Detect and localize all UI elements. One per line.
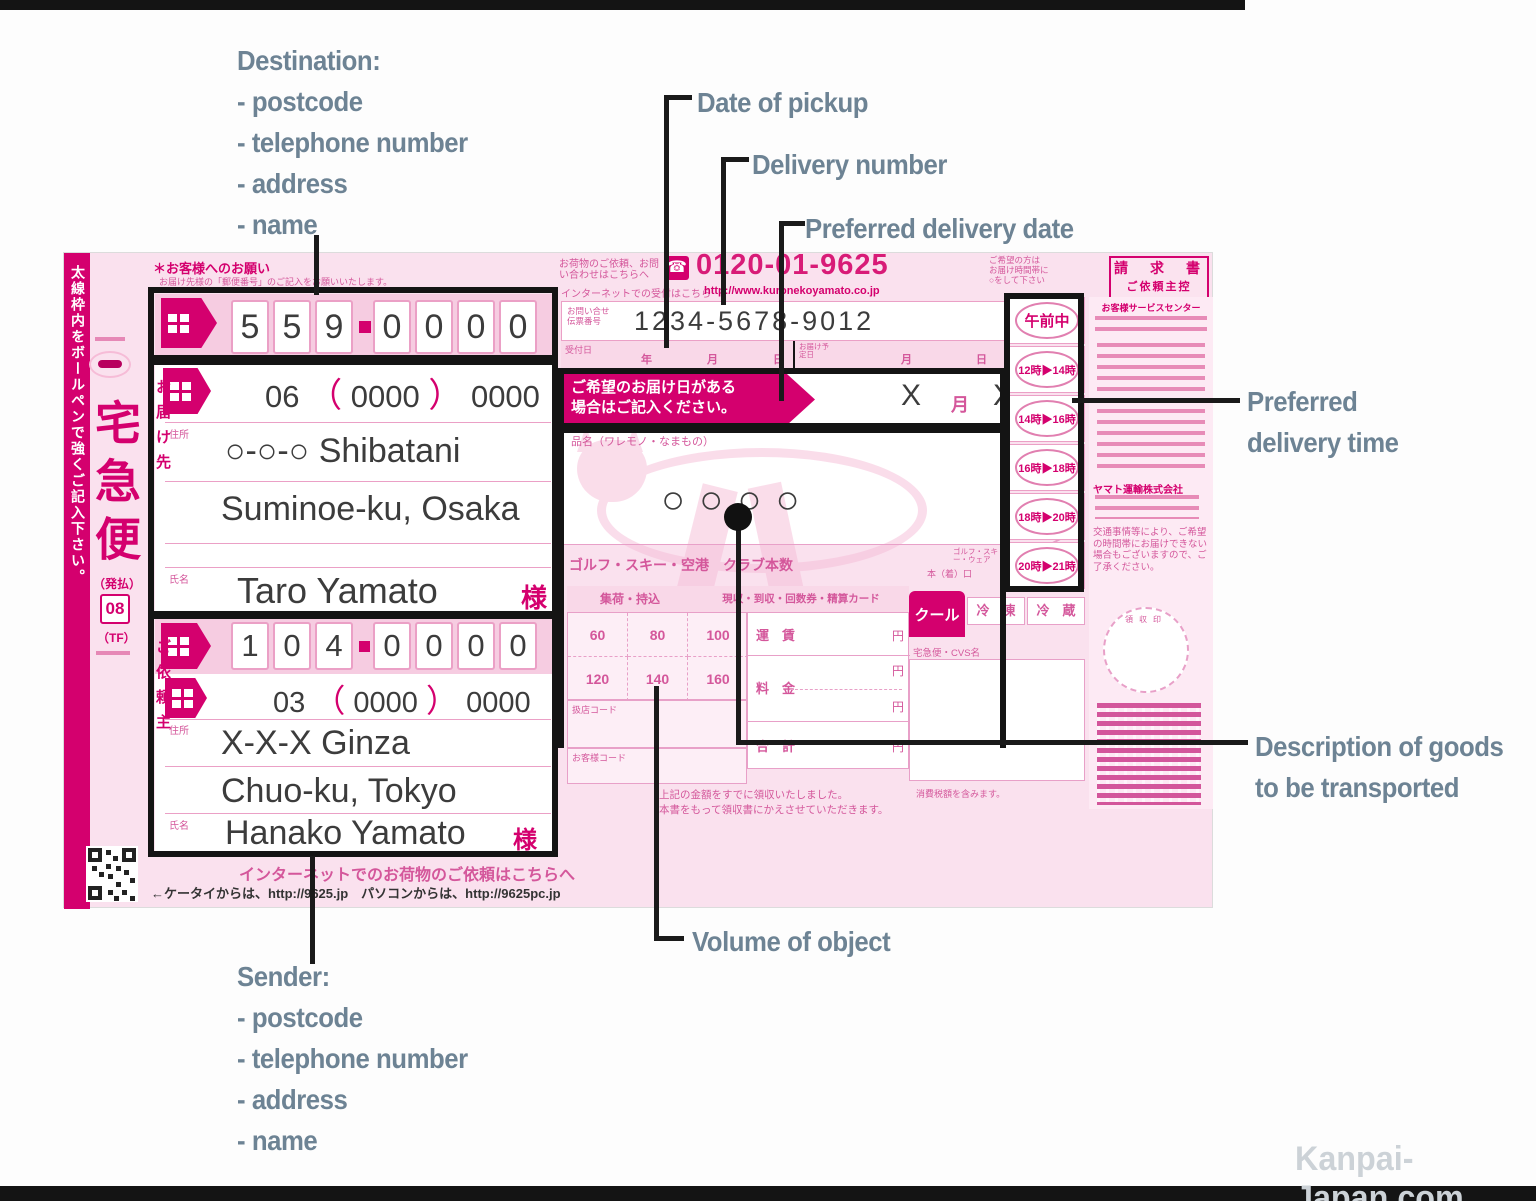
top-black-bar [0, 0, 1245, 10]
contact-label: お荷物のご依頼、お問い合わせはこちらへ [559, 259, 667, 281]
takkyubin-logo: 宅急便 [92, 399, 138, 584]
highlight-time-slots [1004, 293, 1084, 592]
preferred-delivery-date-annotation: Preferred delivery date [805, 208, 1074, 249]
terms-fineprint [1097, 703, 1201, 805]
annotated-delivery-slip: 太線枠内をボールペンで強くご記入下さい。 宅急便 （発払） 08 （TF） [0, 0, 1536, 1201]
sender-annotation-title: Sender: [237, 956, 468, 997]
goods-connector-dot [724, 503, 752, 531]
highlight-destination-info [148, 359, 558, 617]
pickup-date-label: 受付日 [565, 343, 592, 356]
web-url: http://www.kuronekoyamato.co.jp [704, 285, 880, 297]
receipt-note2: 本書をもって領収書にかえさせていただきます。 [659, 802, 888, 817]
service-center-label: お客様サービスセンター [1091, 301, 1211, 314]
internet-note: インターネットでのお荷物のご依頼はこちらへ [239, 861, 575, 885]
preferred-date-connector-line [779, 221, 784, 401]
payment-type-label: （発払） [93, 575, 141, 592]
internet-urls: ←ケータイからは、http://9625.jp パソコンからは、http://9… [151, 883, 561, 902]
pickup-connector-line [664, 95, 669, 348]
volume-connector-elbow [654, 936, 684, 941]
preferred-delivery-time-annotation: Preferred delivery time [1247, 381, 1399, 463]
bold-frame-band: 太線枠内をボールペンで強くご記入下さい。 [64, 253, 90, 909]
description-of-goods-annotation: Description of goods to be transported [1255, 726, 1503, 808]
goods-connector-line-v [736, 515, 741, 745]
delivery-number-value: 1234-5678-9012 [634, 306, 874, 337]
invoice-copy-box: 請 求 書 ご依頼主控 [1109, 256, 1209, 300]
destination-annotation-title: Destination: [237, 40, 468, 81]
sender-annotation: Sender: - postcode - telephone number - … [237, 956, 468, 1161]
goods-connector-line-h [736, 740, 1248, 745]
volume-of-object-annotation: Volume of object [692, 921, 890, 962]
preferred-time-connector-line [1072, 398, 1240, 403]
delivery-number-connector-line [721, 157, 726, 305]
tax-note: 消費税額を含みます。 [916, 787, 1005, 800]
left-col-fineprint [96, 651, 130, 660]
receipt-stamp-circle: 領収印 [1103, 607, 1189, 693]
bold-frame-note: 太線枠内をボールペンで強くご記入下さい。 [68, 265, 88, 897]
highlight-sender-info [148, 613, 558, 857]
qr-code-icon [86, 846, 138, 902]
left-col-mark [95, 337, 125, 345]
service-phone-list [1097, 343, 1205, 475]
watermark: Kanpai-Japan.com [1295, 1140, 1524, 1201]
tf-label: （TF） [97, 629, 136, 646]
date-of-pickup-annotation: Date of pickup [697, 82, 868, 123]
slip-code: 08 [100, 594, 130, 624]
highlight-goods-area [558, 427, 1006, 748]
company-name: ヤマト運輸株式会社 [1093, 481, 1183, 496]
delivery-number-annotation: Delivery number [752, 144, 947, 185]
volume-connector-line [654, 686, 659, 940]
web-note: インターネットでの受付はこちら [561, 285, 711, 300]
highlight-destination-postcode [148, 287, 558, 361]
time-circle-note: ご希望の方は お届け時間帯に ○をして下さい [989, 255, 1079, 285]
right-info-column: お客様サービスセンター ヤマト運輸株式会社 交通事情等により、ご希望の時間帯にお… [1089, 297, 1213, 809]
kuroneko-logo-icon [89, 351, 131, 378]
destination-annotation: Destination: - postcode - telephone numb… [237, 40, 468, 245]
receipt-note1: 上記の金額をすでに領収いたしました。 [659, 787, 848, 802]
service-center-fineprint [1095, 316, 1207, 336]
company-address-fineprint [1095, 495, 1199, 519]
chilled-tab: 冷 蔵 [1027, 597, 1085, 625]
delivery-date-label: お届け予定日 [799, 343, 833, 359]
time-notice: 交通事情等により、ご希望の時間帯にお届けできない場合もございますので、ご了承くだ… [1093, 527, 1209, 573]
sender-connector-line [310, 856, 315, 964]
